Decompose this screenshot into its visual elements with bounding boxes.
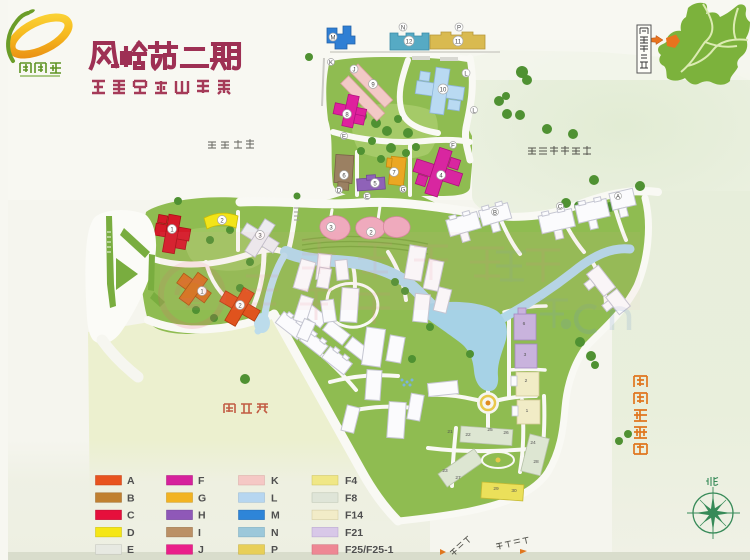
svg-text:6: 6 xyxy=(523,321,526,327)
svg-text:J: J xyxy=(198,544,204,556)
svg-text:F: F xyxy=(451,144,455,150)
svg-text:N: N xyxy=(271,527,279,539)
svg-text:F8: F8 xyxy=(345,492,357,504)
svg-text:2: 2 xyxy=(525,378,528,384)
svg-text:1: 1 xyxy=(526,408,529,414)
svg-text:C: C xyxy=(127,510,135,522)
svg-text:24: 24 xyxy=(530,440,536,446)
svg-text:L: L xyxy=(271,492,278,504)
svg-text:B: B xyxy=(493,211,497,217)
svg-text:G: G xyxy=(198,492,206,504)
svg-text:E: E xyxy=(127,544,134,556)
svg-text:I: I xyxy=(198,527,201,539)
svg-text:D: D xyxy=(337,189,342,195)
svg-text:M: M xyxy=(331,36,336,42)
svg-text:H: H xyxy=(198,510,206,522)
svg-text:28: 28 xyxy=(533,459,539,465)
svg-text:3: 3 xyxy=(524,352,527,358)
svg-text:F4: F4 xyxy=(345,475,357,487)
svg-text:N: N xyxy=(401,26,405,32)
svg-text:E: E xyxy=(342,135,346,141)
svg-text:A: A xyxy=(616,195,620,201)
svg-text:27: 27 xyxy=(455,475,461,481)
svg-text:F25/F25-1: F25/F25-1 xyxy=(345,544,394,556)
svg-text:10: 10 xyxy=(440,88,447,94)
svg-text:M: M xyxy=(271,510,280,522)
svg-text:21: 21 xyxy=(447,429,453,435)
svg-text:C: C xyxy=(558,205,563,211)
svg-text:22: 22 xyxy=(465,432,471,438)
svg-text:29: 29 xyxy=(493,486,499,492)
svg-text:D: D xyxy=(127,527,135,539)
svg-text:P: P xyxy=(457,26,461,32)
svg-text:A: A xyxy=(127,475,135,487)
svg-text:23: 23 xyxy=(442,468,448,474)
svg-text:K: K xyxy=(329,61,333,67)
svg-text:25: 25 xyxy=(487,427,493,433)
svg-text:G: G xyxy=(401,188,406,194)
svg-text:12: 12 xyxy=(406,40,413,46)
svg-text:K: K xyxy=(271,475,279,487)
svg-text:11: 11 xyxy=(455,40,462,46)
svg-text:F: F xyxy=(198,475,205,487)
svg-text:F14: F14 xyxy=(345,510,363,522)
svg-text:B: B xyxy=(127,492,135,504)
svg-text:E: E xyxy=(365,195,369,201)
svg-text:30: 30 xyxy=(511,488,517,494)
svg-text:J: J xyxy=(353,68,356,74)
svg-text:P: P xyxy=(271,544,278,556)
svg-text:F21: F21 xyxy=(345,527,363,539)
svg-text:26: 26 xyxy=(503,430,509,436)
